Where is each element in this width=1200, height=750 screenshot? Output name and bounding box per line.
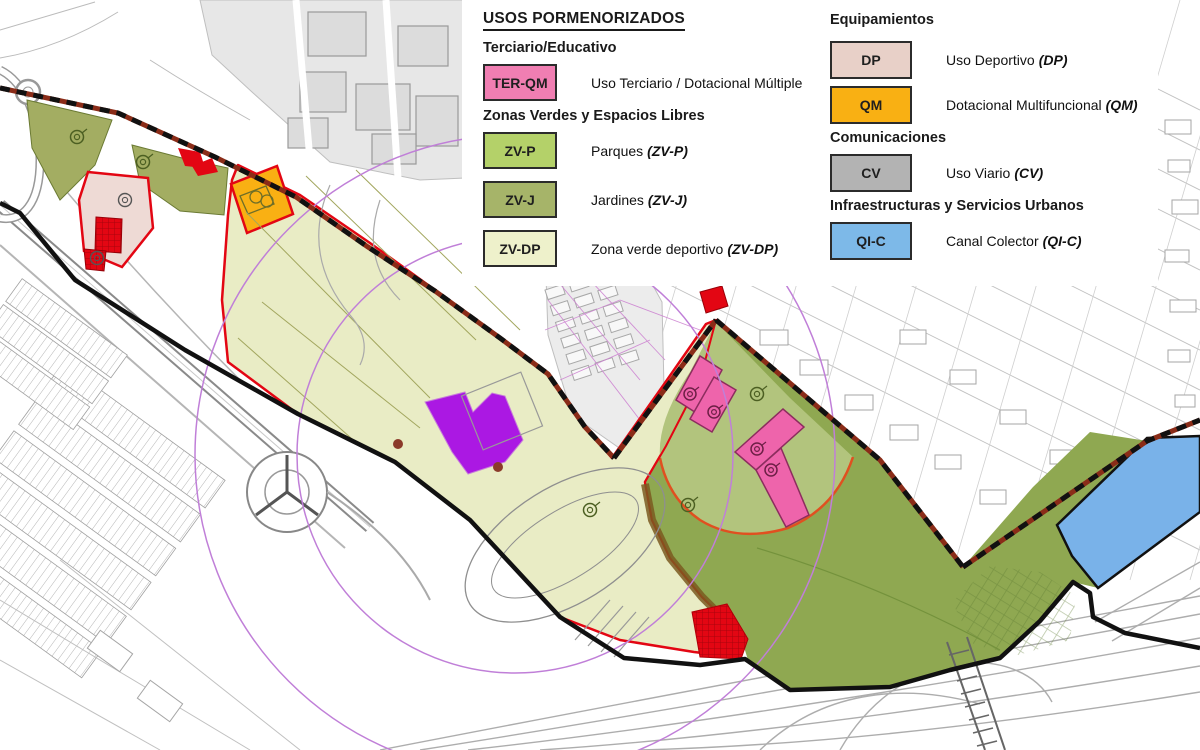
legend-swatch-zv-dp: ZV-DP (483, 230, 557, 267)
legend-label-paren: (ZV-P) (647, 143, 688, 159)
zone-red-building-1 (95, 217, 122, 253)
legend-heading-equipamientos: Equipamientos (830, 12, 1160, 28)
legend-label-qi-c: Canal Colector(QI-C) (946, 233, 1082, 249)
legend-label-text: Parques (591, 143, 643, 159)
legend-label-text: Uso Deportivo (946, 52, 1035, 68)
map-dot-2 (393, 439, 403, 449)
legend-label-text: Canal Colector (946, 233, 1039, 249)
legend-swatch-qi-c: QI-C (830, 222, 912, 260)
legend-item-zv-j: ZV-J Jardines(ZV-J) (483, 181, 813, 218)
legend-label-text: Zona verde deportivo (591, 241, 723, 257)
legend-label-paren: (CV) (1014, 165, 1043, 181)
legend-label-cv: Uso Viario(CV) (946, 165, 1043, 181)
legend-swatch-dp: DP (830, 41, 912, 79)
legend-label-text: Uso Viario (946, 165, 1010, 181)
legend-swatch-zv-j: ZV-J (483, 181, 557, 218)
legend-title: USOS PORMENORIZADOS (483, 10, 685, 31)
legend-swatch-qm: QM (830, 86, 912, 124)
legend-item-zv-dp: ZV-DP Zona verde deportivo(ZV-DP) (483, 230, 813, 267)
legend-heading-terciario: Terciario/Educativo (483, 40, 813, 56)
roundabout (247, 452, 430, 600)
zone-red-corridor-square (700, 286, 728, 313)
parking-rows (0, 279, 225, 678)
legend-label-paren: (ZV-DP) (727, 241, 778, 257)
legend-heading-comunicaciones: Comunicaciones (830, 130, 1160, 146)
campus-area (200, 0, 465, 180)
legend-label-text: Uso Terciario / Dotacional Múltiple (591, 75, 802, 91)
legend-label-dp: Uso Deportivo(DP) (946, 52, 1067, 68)
legend-item-qm: QM Dotacional Multifuncional(QM) (830, 86, 1160, 124)
legend-label-text: Jardines (591, 192, 644, 208)
legend-label-paren: (DP) (1039, 52, 1068, 68)
legend-item-qi-c: QI-C Canal Colector(QI-C) (830, 222, 1160, 260)
legend-label-ter-qm: Uso Terciario / Dotacional Múltiple (591, 75, 806, 91)
legend-label-zv-p: Parques(ZV-P) (591, 143, 688, 159)
legend-label-paren: (QI-C) (1043, 233, 1082, 249)
legend-item-zv-p: ZV-P Parques(ZV-P) (483, 132, 813, 169)
buildings-bottom-left (87, 630, 182, 721)
legend-label-zv-dp: Zona verde deportivo(ZV-DP) (591, 241, 778, 257)
legend-item-cv: CV Uso Viario(CV) (830, 154, 1160, 192)
legend-heading-zonas-verdes: Zonas Verdes y Espacios Libres (483, 108, 813, 124)
zoning-map-page: { "legend": { "left": { "title": "USOS P… (0, 0, 1200, 750)
legend-panel: USOS PORMENORIZADOS Terciario/Educativo … (462, 0, 1158, 286)
legend-swatch-zv-p: ZV-P (483, 132, 557, 169)
legend-label-paren: (QM) (1106, 97, 1138, 113)
legend-column-left: USOS PORMENORIZADOS Terciario/Educativo … (483, 10, 813, 279)
map-dot-1 (493, 462, 503, 472)
legend-heading-infraestructuras: Infraestructuras y Servicios Urbanos (830, 198, 1160, 214)
legend-column-right: Equipamientos DP Uso Deportivo(DP) QM Do… (830, 12, 1160, 272)
legend-item-ter-qm: TER-QM Uso Terciario / Dotacional Múltip… (483, 64, 813, 101)
legend-item-dp: DP Uso Deportivo(DP) (830, 41, 1160, 79)
legend-label-text: Dotacional Multifuncional (946, 97, 1102, 113)
legend-label-paren: (ZV-J) (648, 192, 687, 208)
legend-swatch-cv: CV (830, 154, 912, 192)
legend-label-qm: Dotacional Multifuncional(QM) (946, 97, 1138, 113)
legend-swatch-ter-qm: TER-QM (483, 64, 557, 101)
legend-label-zv-j: Jardines(ZV-J) (591, 192, 687, 208)
